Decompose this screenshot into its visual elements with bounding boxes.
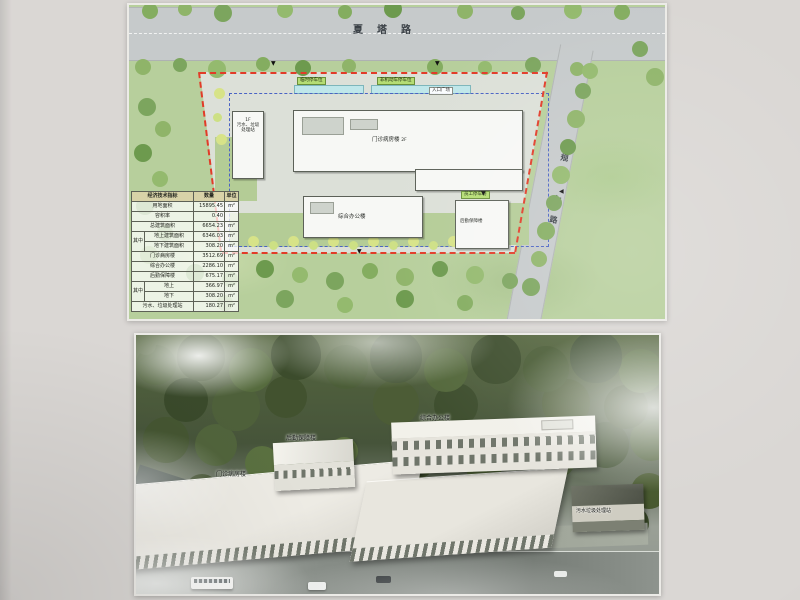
outpatient-building-plan: 门诊病房楼 2F	[293, 110, 523, 172]
table-row: 综合办公楼 2286.10 m²	[132, 262, 239, 272]
sewage-name: 污水、垃圾处理站	[237, 123, 260, 133]
table-row: 用地面积 15895.45 m²	[132, 202, 239, 212]
table-row: 地下建筑面积 308.20 m²	[132, 242, 239, 252]
bus	[191, 577, 233, 589]
office-building-3d	[391, 415, 597, 474]
table-row: 容积率 0.40	[132, 212, 239, 222]
roof-patch	[302, 117, 344, 135]
table-row: 地下 308.20 m²	[132, 292, 239, 302]
car	[308, 582, 326, 590]
roof-patch	[310, 202, 334, 214]
outpatient-floors: 2F	[401, 138, 406, 143]
sewage-label: 污水垃圾处理站	[576, 507, 611, 514]
outpatient-wing-plan	[415, 169, 523, 191]
indicator-table: 经济技术指标 数量 单位 用地面积 15895.45 m² 容积率 0.40 总…	[131, 191, 239, 312]
entrance-marker-icon: ▼	[435, 61, 440, 67]
red-boundary-bottom	[222, 252, 515, 254]
facade	[392, 431, 597, 474]
rooftop-unit	[541, 419, 573, 430]
table-row: 总建筑面积 6654.23 m²	[132, 222, 239, 232]
facade-windows	[392, 434, 596, 450]
table-row: 后勤保障楼 675.17 m²	[132, 272, 239, 282]
logistics-building-3d	[273, 439, 355, 491]
site-plan-image: 夏塔路 规 划 七 路 1F 污水、垃圾处理站 门诊病房楼 2F 综合办公楼	[127, 3, 667, 321]
table-row: 门诊病房楼 3512.69 m²	[132, 252, 239, 262]
facade	[274, 461, 355, 491]
hedge-row	[129, 5, 138, 14]
roof-patch	[350, 119, 378, 130]
tree-canopy	[136, 335, 152, 351]
tag-entry-plaza: 入口广场	[429, 87, 453, 95]
outpatient-wing-3d	[350, 467, 569, 561]
car	[376, 576, 391, 583]
table-row: 其中 地上建筑面积 6346.03 m²	[132, 232, 239, 242]
table-row: 污水、垃圾处理站 180.27 m²	[132, 302, 239, 312]
table-header: 数量	[194, 192, 225, 202]
office-name: 综合办公楼	[338, 214, 366, 220]
table-header-row: 经济技术指标 数量 单位	[132, 192, 239, 202]
aerial-rendering-image: 门诊病房楼 后勤保障楼 综合办公楼 污水垃圾处理站	[134, 333, 661, 596]
logistics-name: 后勤保障楼	[460, 219, 483, 224]
bus-windows	[194, 579, 230, 583]
entrance-marker-icon: ▼	[271, 61, 276, 67]
facade-windows	[274, 467, 354, 479]
table-header: 经济技术指标	[132, 192, 194, 202]
car	[554, 571, 567, 577]
tag-temp-parking: 临时停车位	[297, 77, 326, 85]
outpatient-name: 门诊病房楼	[372, 137, 400, 143]
outpatient-label: 门诊病房楼	[216, 469, 246, 478]
entrance-marker-icon: ▼	[357, 249, 362, 255]
roof	[571, 484, 644, 507]
logistics-building-plan: 后勤保障楼	[455, 200, 509, 249]
table-row: 其中 地上 366.97 m²	[132, 282, 239, 292]
facade-windows	[392, 450, 596, 466]
table-header: 单位	[225, 192, 239, 202]
tag-bike-parking: 非机动车停车位	[377, 77, 415, 85]
red-boundary-top	[200, 72, 548, 74]
logistics-label: 后勤保障楼	[286, 433, 316, 442]
entrance-marker-icon: ◀	[559, 189, 564, 195]
office-label: 综合办公楼	[420, 413, 450, 422]
sewage-station-plan: 1F 污水、垃圾处理站	[232, 111, 264, 179]
entrance-marker-icon: ▼	[481, 191, 486, 197]
top-road-label: 夏塔路	[269, 21, 509, 36]
office-building-plan: 综合办公楼	[303, 196, 423, 238]
